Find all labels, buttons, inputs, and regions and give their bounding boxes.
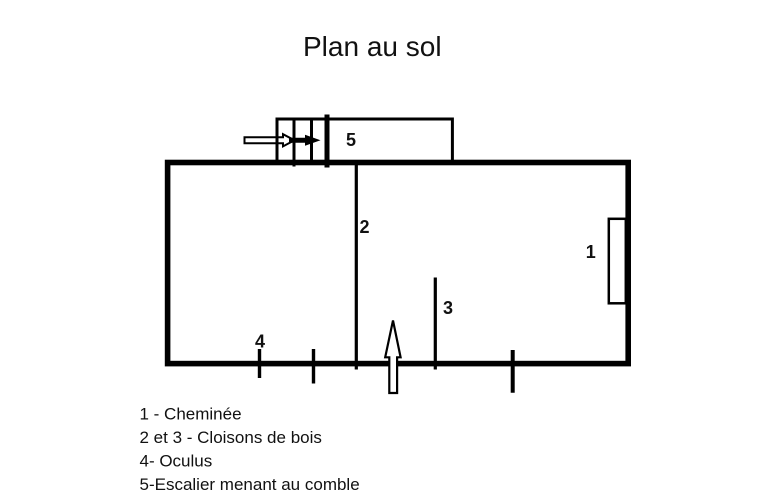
- svg-text:5: 5: [346, 130, 356, 150]
- svg-text:5-Escalier menant au comble: 5-Escalier menant au comble: [140, 475, 360, 494]
- svg-text:4: 4: [255, 332, 265, 352]
- svg-text:1: 1: [586, 242, 596, 262]
- svg-text:3: 3: [443, 298, 453, 318]
- svg-text:2: 2: [359, 217, 369, 237]
- svg-text:1 - Cheminée: 1 - Cheminée: [140, 405, 242, 424]
- svg-text:2 et 3 - Cloisons de bois: 2 et 3 - Cloisons de bois: [140, 428, 322, 447]
- svg-text:Plan au sol: Plan au sol: [303, 31, 442, 62]
- svg-text:4- Oculus: 4- Oculus: [140, 452, 213, 471]
